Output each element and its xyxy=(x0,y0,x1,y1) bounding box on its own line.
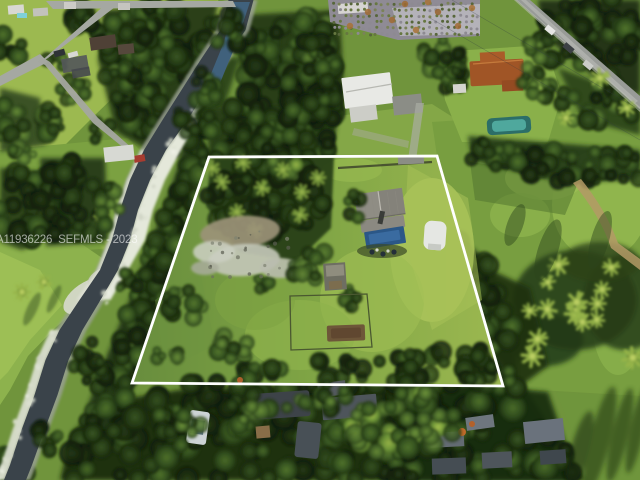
svg-text:A11936226 SEFMLS - 2023: A11936226 SEFMLS - 2023 xyxy=(0,234,137,246)
